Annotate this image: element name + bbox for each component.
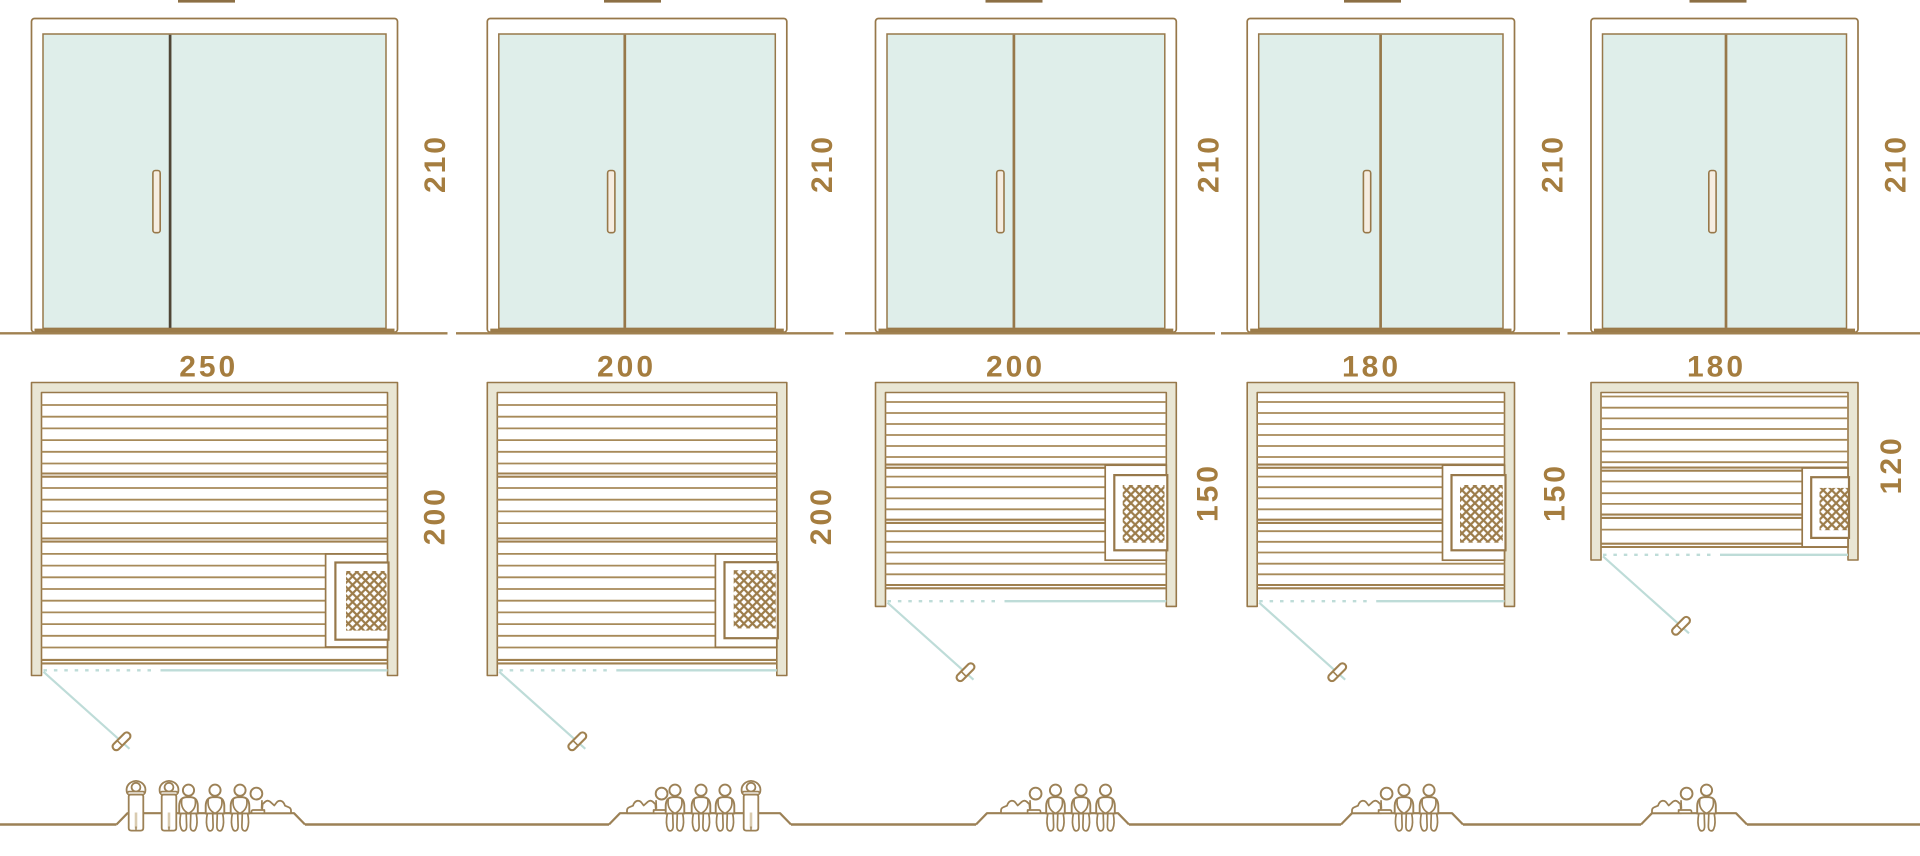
svg-text:120: 120 [1875, 438, 1908, 494]
svg-text:210: 210 [1193, 137, 1226, 193]
svg-text:200: 200 [419, 489, 452, 545]
svg-text:200: 200 [597, 351, 653, 384]
svg-text:150: 150 [1539, 466, 1572, 522]
svg-text:180: 180 [1687, 351, 1743, 384]
svg-text:210: 210 [419, 137, 452, 193]
svg-text:210: 210 [1537, 137, 1570, 193]
svg-text:250: 250 [179, 351, 235, 384]
svg-text:150: 150 [1192, 466, 1225, 522]
svg-text:210: 210 [806, 137, 839, 193]
svg-text:200: 200 [986, 351, 1042, 384]
svg-text:180: 180 [1342, 351, 1398, 384]
svg-text:200: 200 [805, 489, 838, 545]
svg-text:210: 210 [1880, 137, 1913, 193]
